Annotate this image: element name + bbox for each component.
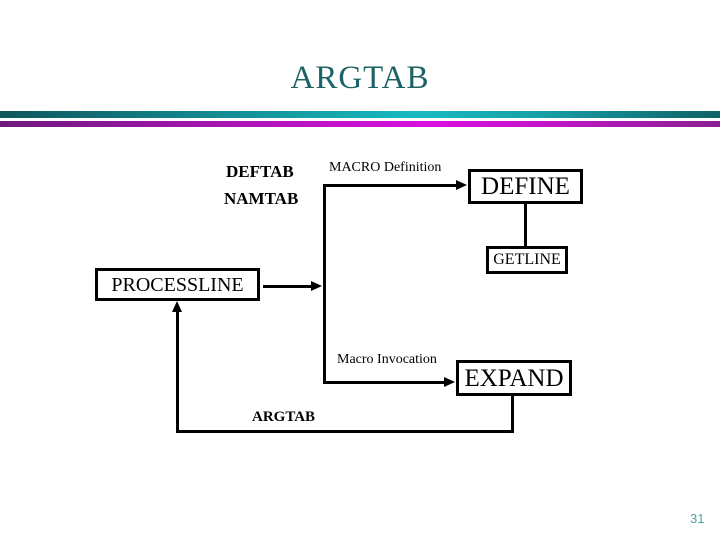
namtab-label: NAMTAB <box>224 190 298 209</box>
arrowhead-into-expand-icon <box>444 377 455 387</box>
teal-divider-bar <box>0 111 720 118</box>
connector-feedback-bottom <box>176 430 514 433</box>
connector-define-to-getline <box>524 202 527 247</box>
arrowhead-into-processline-icon <box>172 301 182 312</box>
processline-box-label: PROCESSLINE <box>111 275 243 295</box>
presentation-slide: ARGTAB DEFTAB NAMTAB MACRO Definition Ma… <box>0 0 720 540</box>
macro-invocation-label: Macro Invocation <box>337 352 437 367</box>
connector-processline-to-trunk <box>263 285 312 288</box>
connector-trunk-to-define <box>323 184 458 187</box>
connector-trunk-vertical <box>323 184 326 384</box>
define-box-label: DEFINE <box>481 174 570 199</box>
expand-box: EXPAND <box>456 360 572 396</box>
connector-trunk-to-expand <box>323 381 445 384</box>
expand-box-label: EXPAND <box>464 366 563 391</box>
connector-expand-down <box>511 394 514 433</box>
processline-box: PROCESSLINE <box>95 268 260 301</box>
getline-box: GETLINE <box>486 246 568 274</box>
slide-title: ARGTAB <box>0 60 720 97</box>
slide-page-number: 31 <box>690 511 704 526</box>
deftab-label: DEFTAB <box>226 163 294 182</box>
argtab-feedback-label: ARGTAB <box>252 409 315 426</box>
arrowhead-into-trunk-icon <box>311 281 322 291</box>
connector-feedback-left-up <box>176 311 179 433</box>
define-box: DEFINE <box>468 169 583 204</box>
magenta-divider-bar <box>0 121 720 127</box>
getline-box-label: GETLINE <box>493 252 561 268</box>
arrowhead-into-define-icon <box>456 180 467 190</box>
macro-definition-label: MACRO Definition <box>329 160 441 175</box>
